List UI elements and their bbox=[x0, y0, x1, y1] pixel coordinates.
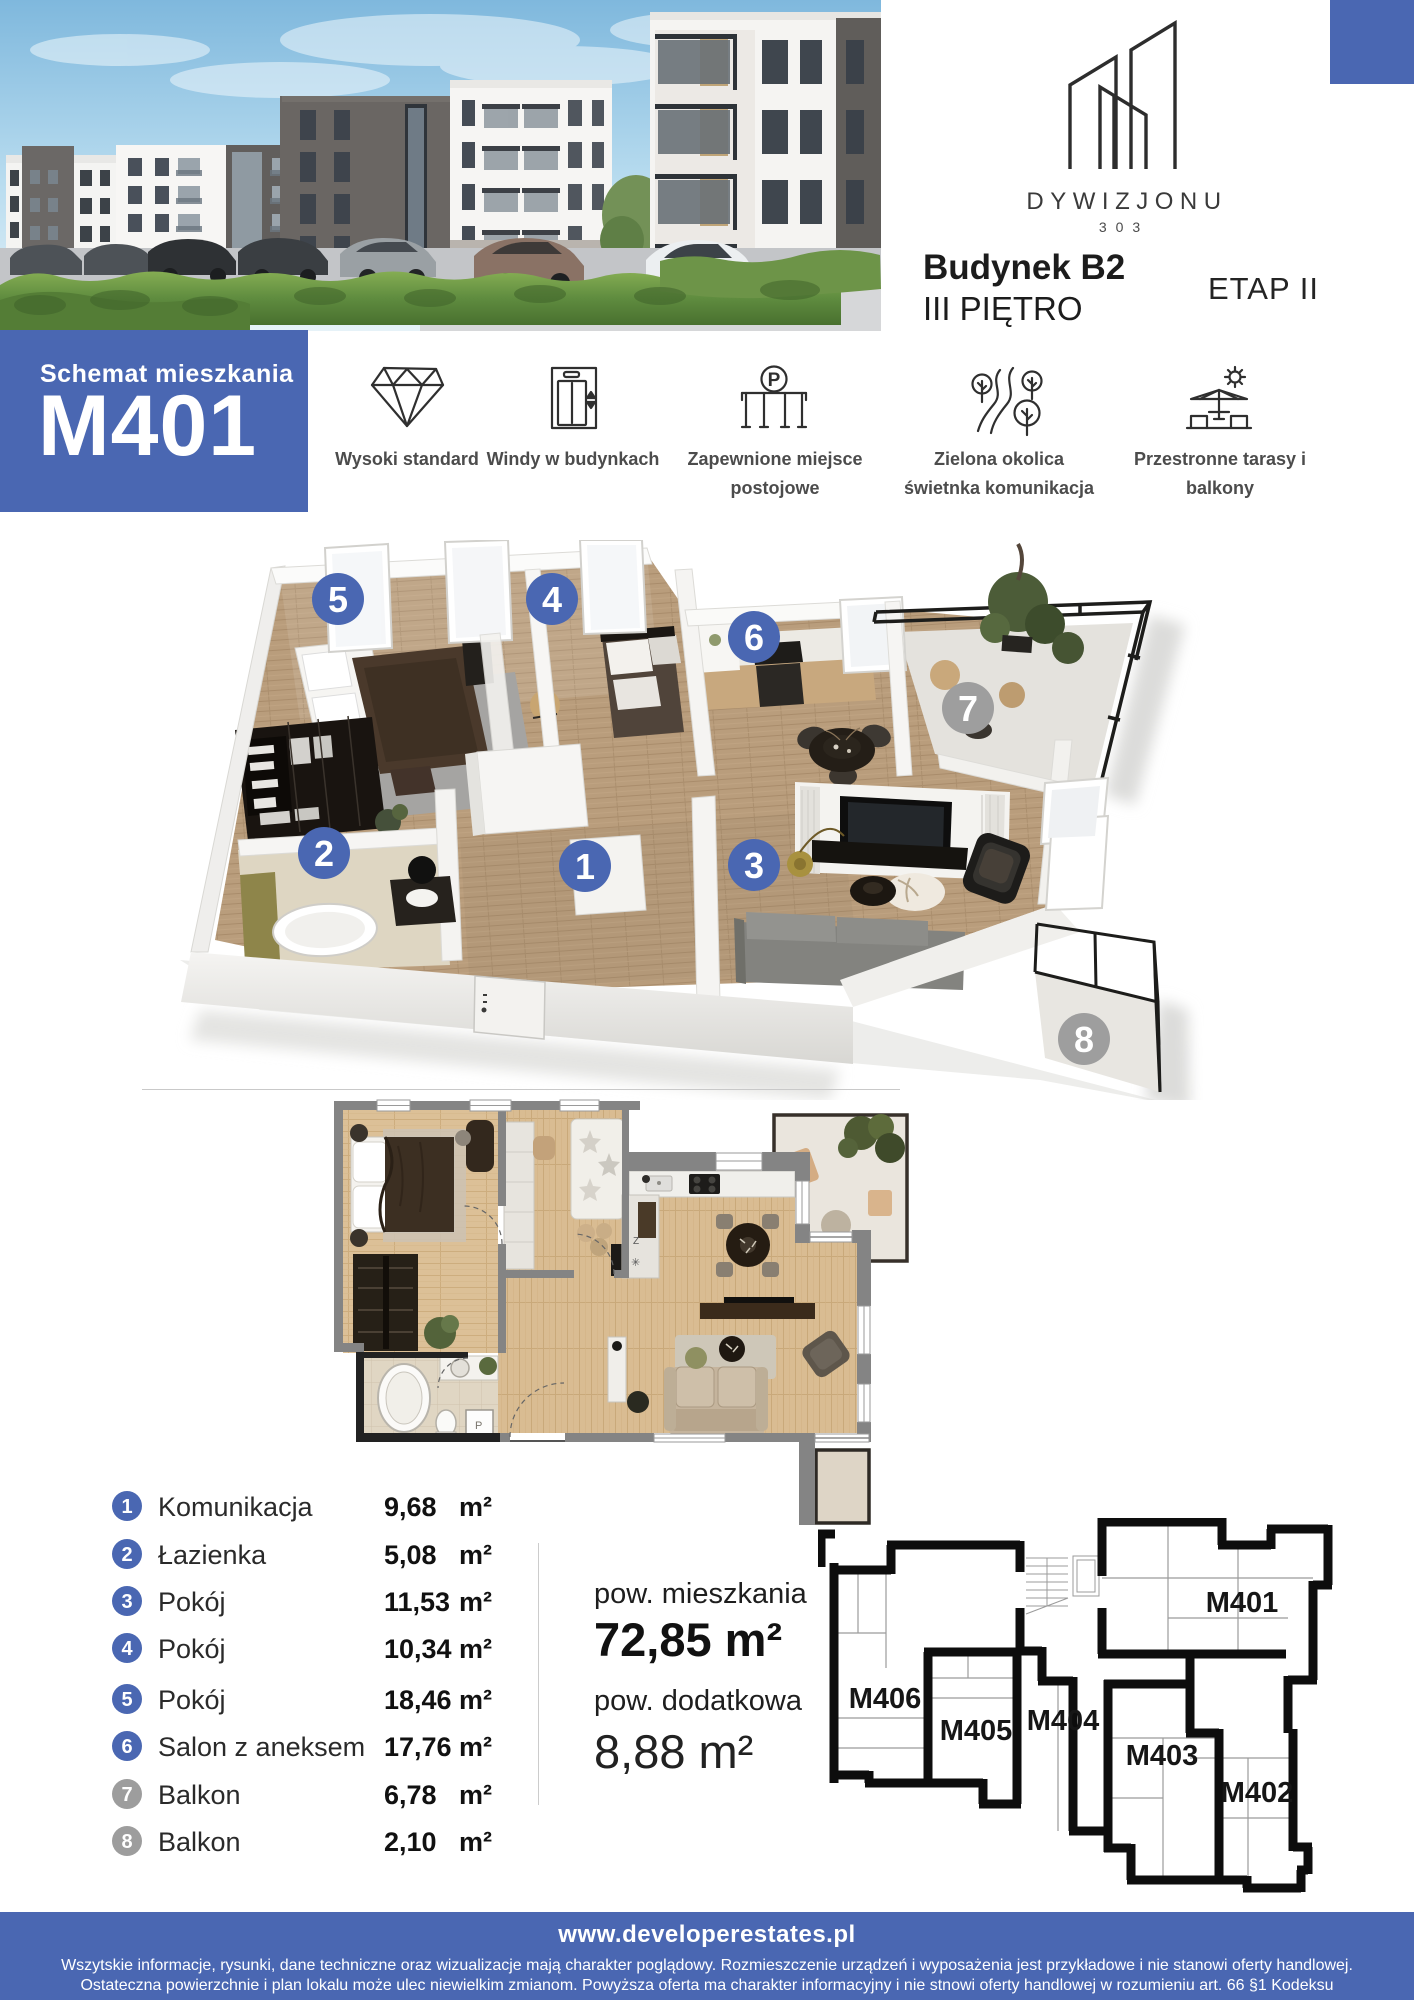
svg-text:5: 5 bbox=[328, 579, 348, 620]
svg-text:m²: m² bbox=[459, 1732, 492, 1762]
svg-text:m²: m² bbox=[459, 1540, 492, 1570]
svg-text:Balkon: Balkon bbox=[158, 1780, 241, 1810]
svg-text:5: 5 bbox=[121, 1689, 132, 1711]
svg-text:Zielona okolica: Zielona okolica bbox=[934, 449, 1065, 469]
svg-text:Salon z aneksem: Salon z aneksem bbox=[158, 1732, 365, 1762]
svg-text:303: 303 bbox=[1099, 219, 1149, 235]
svg-text:M401: M401 bbox=[1206, 1587, 1279, 1619]
svg-text:✳: ✳ bbox=[631, 1257, 640, 1269]
svg-text:3: 3 bbox=[121, 1591, 132, 1613]
svg-text:Pokój: Pokój bbox=[158, 1685, 226, 1715]
svg-text:1: 1 bbox=[121, 1496, 132, 1518]
svg-text:9,68: 9,68 bbox=[384, 1492, 437, 1522]
svg-text:M404: M404 bbox=[1027, 1705, 1100, 1737]
svg-text:7: 7 bbox=[121, 1784, 132, 1806]
svg-text:M405: M405 bbox=[940, 1715, 1013, 1747]
svg-text:5,08: 5,08 bbox=[384, 1540, 437, 1570]
svg-text:Komunikacja: Komunikacja bbox=[158, 1492, 314, 1522]
svg-text:17,76: 17,76 bbox=[384, 1732, 452, 1762]
svg-text:Windy w budynkach: Windy w budynkach bbox=[487, 449, 660, 469]
svg-text:M402: M402 bbox=[1221, 1777, 1294, 1809]
svg-text:18,46: 18,46 bbox=[384, 1685, 452, 1715]
svg-text:7: 7 bbox=[958, 688, 978, 729]
svg-text:balkony: balkony bbox=[1186, 478, 1254, 498]
svg-text:Pokój: Pokój bbox=[158, 1587, 226, 1617]
svg-text:postojowe: postojowe bbox=[731, 478, 820, 498]
svg-text:6,78: 6,78 bbox=[384, 1780, 437, 1810]
svg-text:Wysoki standard: Wysoki standard bbox=[335, 449, 479, 469]
svg-text:m²: m² bbox=[459, 1685, 492, 1715]
svg-text:Zapewnione miejsce: Zapewnione miejsce bbox=[687, 449, 862, 469]
svg-text:M406: M406 bbox=[849, 1683, 922, 1715]
svg-text:DYWIZJONU: DYWIZJONU bbox=[1026, 188, 1227, 215]
svg-text:P: P bbox=[475, 1420, 482, 1432]
svg-text:Balkon: Balkon bbox=[158, 1827, 241, 1857]
svg-text:1: 1 bbox=[575, 846, 595, 887]
svg-text:M403: M403 bbox=[1126, 1740, 1199, 1772]
svg-text:11,53: 11,53 bbox=[384, 1587, 450, 1617]
svg-text:m²: m² bbox=[459, 1634, 492, 1664]
svg-text:3: 3 bbox=[744, 845, 764, 886]
svg-text:4: 4 bbox=[542, 579, 562, 620]
svg-text:świetnka komunikacja: świetnka komunikacja bbox=[904, 478, 1095, 498]
svg-text:6: 6 bbox=[744, 617, 764, 658]
svg-text:2,10: 2,10 bbox=[384, 1827, 437, 1857]
svg-text:2: 2 bbox=[121, 1544, 132, 1566]
svg-text:8: 8 bbox=[1074, 1019, 1094, 1060]
svg-text:m²: m² bbox=[459, 1587, 492, 1617]
svg-text:Z: Z bbox=[633, 1236, 639, 1247]
svg-text:m²: m² bbox=[459, 1780, 492, 1810]
svg-text:Łazienka: Łazienka bbox=[158, 1540, 267, 1570]
svg-text:Pokój: Pokój bbox=[158, 1634, 226, 1664]
svg-text:4: 4 bbox=[121, 1638, 133, 1660]
svg-text:P: P bbox=[768, 370, 781, 391]
svg-text:10,34: 10,34 bbox=[384, 1634, 452, 1664]
svg-text:m²: m² bbox=[459, 1492, 492, 1522]
svg-text:6: 6 bbox=[121, 1736, 132, 1758]
svg-text:8: 8 bbox=[121, 1831, 132, 1853]
svg-text:Przestronne tarasy i: Przestronne tarasy i bbox=[1134, 449, 1306, 469]
svg-text:m²: m² bbox=[459, 1827, 492, 1857]
svg-text:2: 2 bbox=[314, 833, 334, 874]
